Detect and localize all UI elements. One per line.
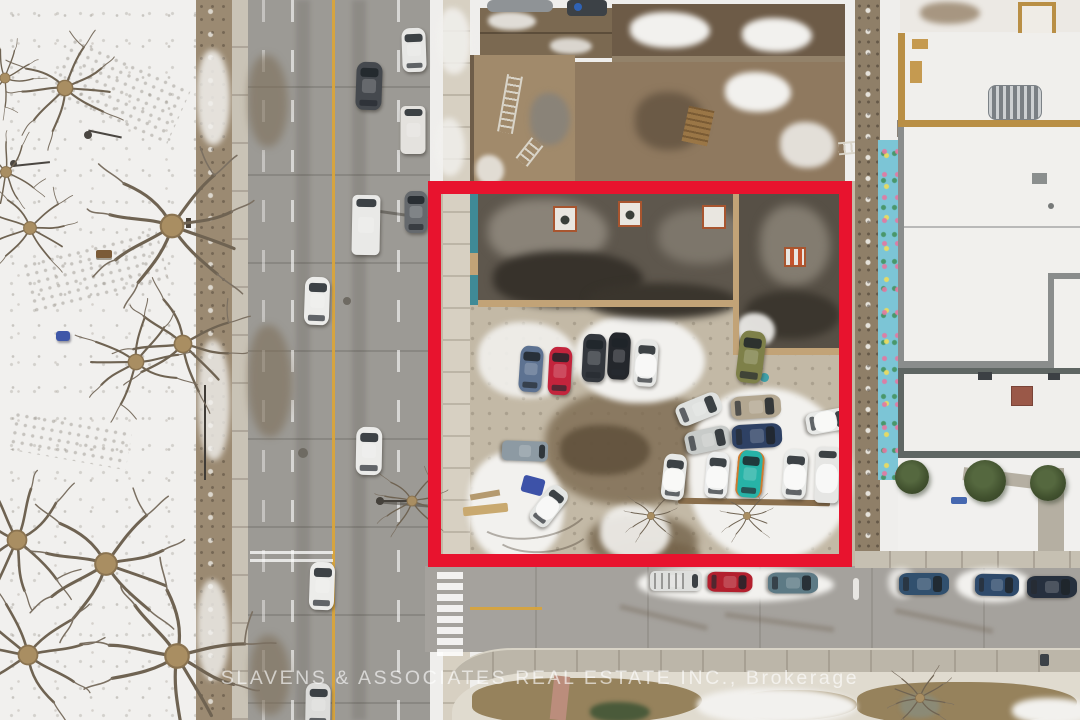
hedge bbox=[590, 702, 650, 720]
rooftop-tank bbox=[487, 0, 553, 12]
garbage-bin bbox=[1040, 654, 1049, 666]
manhole-cover bbox=[343, 297, 351, 305]
right-district bbox=[855, 0, 1080, 570]
gray-parapet-roof bbox=[898, 127, 1080, 368]
brown-roof bbox=[575, 62, 845, 191]
zebra-bar bbox=[437, 616, 463, 623]
car-rear-window bbox=[313, 600, 330, 607]
snow-patch bbox=[197, 580, 229, 680]
car-truck bbox=[650, 571, 702, 591]
snow-patch bbox=[742, 18, 812, 52]
car-windshield bbox=[360, 68, 379, 78]
car-sedan bbox=[899, 573, 949, 595]
car-windshield bbox=[313, 568, 331, 578]
car-roof-highlight bbox=[358, 216, 374, 233]
snowy-park bbox=[0, 0, 205, 720]
top-buildings bbox=[470, 0, 845, 191]
hydrant-marker bbox=[853, 578, 859, 600]
car-windshield bbox=[692, 574, 699, 588]
snow-patch bbox=[780, 122, 835, 168]
car-windshield bbox=[356, 199, 376, 207]
roof-ridge bbox=[480, 32, 612, 34]
car-rear-window bbox=[407, 62, 423, 68]
yellow-centerline bbox=[332, 0, 335, 720]
car-roof-highlight bbox=[917, 578, 931, 590]
roof-skylight bbox=[1048, 373, 1060, 380]
car-rear-window bbox=[360, 100, 377, 107]
footprint-trail bbox=[7, 410, 132, 470]
conifer-shrub bbox=[964, 460, 1006, 502]
lamp-post-arm bbox=[88, 129, 122, 138]
car-van bbox=[351, 195, 380, 255]
zebra-bar bbox=[437, 572, 463, 579]
mud-patch bbox=[248, 55, 288, 147]
car-rear-window bbox=[360, 465, 377, 472]
blue-barrel bbox=[574, 3, 582, 11]
car-roof-highlight bbox=[724, 576, 737, 587]
car-roof-highlight bbox=[786, 577, 800, 589]
car-windshield bbox=[933, 576, 943, 592]
car-sedan bbox=[355, 62, 383, 111]
car-sedan bbox=[405, 191, 428, 233]
aerial-photo: SLAVENS & ASSOCIATES REAL ESTATE INC., B… bbox=[0, 0, 1080, 720]
snow-patch bbox=[697, 688, 857, 720]
car-windshield bbox=[802, 575, 812, 590]
footprint-trail bbox=[20, 229, 169, 316]
car-sedan bbox=[707, 572, 752, 593]
brick-chimney bbox=[1011, 386, 1033, 406]
snow-patch bbox=[725, 72, 791, 112]
shrub bbox=[900, 694, 940, 718]
zebra-bar bbox=[437, 583, 463, 590]
zebra-bar bbox=[437, 627, 463, 634]
car-windshield bbox=[408, 196, 425, 204]
roof-hatch bbox=[1032, 173, 1047, 184]
ladder bbox=[497, 74, 523, 134]
car-rear-window bbox=[1031, 580, 1038, 595]
car-rear-window bbox=[308, 315, 325, 322]
brokerage-watermark: SLAVENS & ASSOCIATES REAL ESTATE INC., B… bbox=[221, 667, 859, 690]
mural-wall-strip bbox=[878, 140, 898, 480]
parapet-gray-step-top bbox=[1048, 273, 1080, 279]
park-sign bbox=[186, 218, 191, 228]
car-rear-window bbox=[978, 577, 984, 592]
car-roof-highlight bbox=[991, 579, 1004, 592]
car-roof-highlight bbox=[311, 699, 325, 712]
parapet-gray-bottom bbox=[898, 361, 1053, 368]
north-sidewalk-right bbox=[855, 551, 1080, 568]
lamp-head bbox=[84, 131, 92, 139]
lamp-post-arm bbox=[14, 161, 50, 167]
roof-se bbox=[898, 368, 1080, 458]
flat-roof-north bbox=[612, 4, 845, 62]
car-sedan bbox=[356, 427, 383, 475]
car-roof-highlight bbox=[406, 123, 420, 136]
conifer-shrub bbox=[1030, 465, 1066, 501]
car-sedan bbox=[309, 562, 336, 611]
car-roof-highlight bbox=[315, 579, 329, 593]
roof-skylight bbox=[978, 372, 992, 380]
snow-patch bbox=[435, 118, 465, 176]
park-bench bbox=[96, 250, 112, 258]
car-windshield bbox=[360, 433, 379, 442]
tree-shadow bbox=[725, 612, 835, 632]
lane-dash-line bbox=[291, 0, 294, 720]
car-windshield bbox=[1061, 579, 1071, 595]
car-windshield bbox=[308, 283, 326, 293]
tan-roof bbox=[470, 55, 575, 191]
car-van bbox=[401, 106, 426, 154]
street-lamp-arm bbox=[380, 500, 408, 502]
car-roof-highlight bbox=[310, 294, 324, 308]
stop-bar bbox=[250, 551, 333, 554]
property-boundary-box bbox=[428, 181, 852, 567]
car-suv bbox=[401, 28, 427, 73]
conifer-shrub bbox=[895, 460, 929, 494]
car-windshield bbox=[1005, 577, 1014, 593]
car-rear-window bbox=[772, 576, 779, 590]
street-lamp-head bbox=[376, 497, 384, 505]
mud-patch bbox=[248, 325, 292, 437]
yard-bench bbox=[951, 497, 967, 504]
roof-stain bbox=[920, 2, 980, 24]
picnic-table bbox=[56, 331, 70, 341]
parapet-gray-step bbox=[1048, 273, 1054, 368]
snow-patch bbox=[198, 340, 230, 460]
car-sedan bbox=[975, 574, 1019, 597]
car-rear-window bbox=[903, 577, 910, 592]
alley-dirt bbox=[855, 0, 880, 570]
car-roof-highlight bbox=[1045, 581, 1059, 593]
roof-vent bbox=[1048, 203, 1054, 209]
parapet-gold-left bbox=[898, 33, 905, 127]
parapet-gray-left bbox=[898, 127, 904, 368]
car-roof-highlight bbox=[407, 44, 421, 57]
car-roof-highlight bbox=[410, 206, 423, 218]
footprint-trail bbox=[48, 36, 191, 144]
parapet-gold-bottom bbox=[898, 120, 1080, 127]
gold-roof-fixture bbox=[910, 61, 922, 83]
zebra-bar bbox=[437, 594, 463, 601]
zebra-bar bbox=[437, 605, 463, 612]
curb-sidewalk-strip bbox=[232, 0, 248, 720]
roof-seam bbox=[904, 226, 1080, 228]
roof-stain bbox=[530, 93, 570, 145]
parapet-dark-left bbox=[898, 368, 904, 458]
lamp-head bbox=[10, 160, 17, 167]
car-windshield bbox=[738, 575, 747, 590]
car-sedan bbox=[304, 277, 331, 326]
car-roof-highlight bbox=[361, 79, 376, 93]
zebra-bar bbox=[437, 649, 463, 656]
tire-wear-band bbox=[296, 0, 310, 720]
tree-shadow bbox=[894, 608, 993, 634]
gold-roof-fixture bbox=[912, 39, 928, 49]
car-windshield bbox=[404, 109, 422, 115]
parapet-dark-bottom bbox=[898, 451, 1080, 458]
street-lamp-pole bbox=[204, 385, 206, 480]
zebra-bar bbox=[437, 638, 463, 645]
car-sedan bbox=[1027, 576, 1077, 598]
hvac-barrel-unit bbox=[988, 85, 1042, 120]
snow-patch bbox=[437, 8, 471, 74]
car-rear-window bbox=[711, 575, 717, 588]
snow-patch bbox=[488, 12, 536, 30]
boulevard-dirt-strip bbox=[196, 0, 232, 720]
lane-dash-line bbox=[397, 0, 400, 720]
dark-van-top bbox=[567, 0, 607, 16]
manhole-cover bbox=[298, 448, 308, 458]
car-windshield bbox=[405, 33, 423, 42]
watermark-text: SLAVENS & ASSOCIATES REAL ESTATE INC., B… bbox=[221, 667, 859, 689]
car-sedan bbox=[768, 573, 818, 594]
snow-patch bbox=[550, 38, 592, 54]
ladder-rack bbox=[654, 573, 684, 588]
roof-edge bbox=[470, 55, 474, 191]
tree-shadow bbox=[619, 604, 708, 631]
snow-patch bbox=[1012, 698, 1080, 720]
car-roof-highlight bbox=[362, 444, 377, 458]
car-rear-window bbox=[408, 224, 423, 229]
yellow-dash-line bbox=[470, 607, 542, 610]
snow-patch bbox=[630, 12, 710, 48]
snow-patch bbox=[197, 50, 230, 145]
